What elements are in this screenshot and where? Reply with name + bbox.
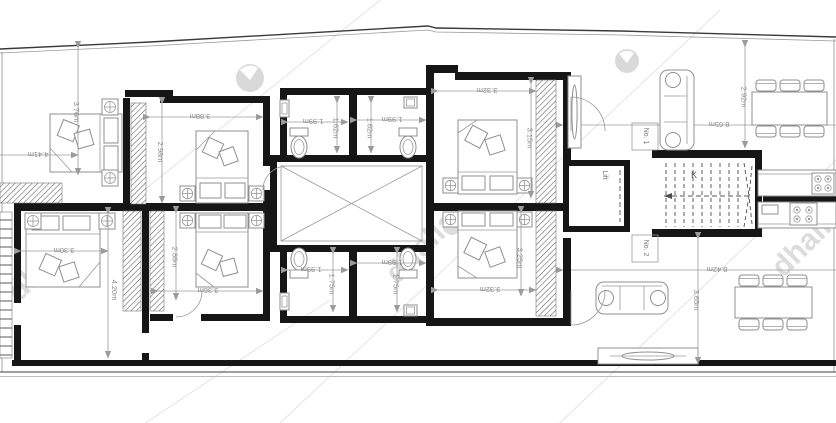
- sofa-icon: [596, 282, 668, 314]
- bedside-vent-icon: [517, 178, 532, 193]
- dim-living2-height: 3.65m: [692, 290, 701, 311]
- wardrobe: [123, 211, 141, 311]
- dim-bedroom3-width: 3.32m: [477, 86, 498, 95]
- lift-label: Lift: [601, 170, 608, 179]
- wardrobe: [536, 211, 556, 316]
- floor-plan-svg: dhalia dhalia dhalia: [0, 0, 836, 423]
- dim-bedroom6-height: 3.25m: [516, 248, 525, 269]
- staircase: K: [664, 163, 752, 227]
- dim-bath4-width: 1.99m: [382, 258, 403, 267]
- ventilation-shaft: [281, 166, 422, 241]
- unit-labels: No. 1 No. 2: [632, 123, 658, 262]
- wardrobe: [0, 183, 62, 203]
- toilet-icon: [290, 128, 308, 158]
- bedside-vent-icon: [180, 186, 195, 201]
- stairs-label: K: [691, 170, 697, 180]
- planter-icon: [598, 348, 698, 364]
- dim-bath2-width: 1.99m: [382, 115, 403, 124]
- dim-bath4-height: 1.75m: [392, 274, 401, 295]
- sink-icon: [280, 100, 289, 117]
- wardrobe: [150, 211, 164, 311]
- dim-bath3-width: 1.99m: [301, 265, 322, 274]
- bedside-vent-icon: [180, 213, 195, 228]
- toilet-icon: [399, 128, 417, 158]
- bed-icon: [196, 213, 248, 287]
- dim-bedroom1-width: 4.41m: [28, 150, 49, 159]
- wardrobe: [536, 80, 556, 203]
- bedside-vent-icon: [25, 213, 41, 229]
- planter-shelf: [0, 212, 12, 358]
- tv-unit-icon: [568, 76, 581, 148]
- dim-living2-width: 8.42m: [707, 265, 728, 274]
- dining-table-icon: [735, 275, 812, 330]
- dim-bath1-height: 1.62m: [332, 118, 341, 139]
- dim-living1-width: 8.65m: [709, 120, 730, 129]
- dim-bedroom4-height: 4.20m: [110, 280, 119, 301]
- bedside-vent-icon: [443, 212, 458, 227]
- bed-icon: [458, 211, 517, 278]
- dim-bedroom2-width: 3.88m: [190, 112, 211, 121]
- dim-bedroom4-width: 3.30m: [54, 246, 75, 255]
- bedside-vent-icon: [249, 186, 264, 201]
- dim-bedroom1-height: 3.76m: [72, 102, 81, 123]
- dim-bedroom5-height: 2.86m: [171, 247, 180, 268]
- floor-plan-canvas: dhalia dhalia dhalia: [0, 0, 836, 423]
- dim-living1-height: 2.92m: [740, 87, 749, 108]
- kitchen-counter-unit1: [758, 170, 836, 196]
- sink-icon: [404, 97, 417, 108]
- bed-icon: [196, 131, 248, 203]
- dim-bedroom5-width: 3.36m: [198, 286, 219, 295]
- bedside-vent-icon: [102, 99, 118, 115]
- unit2-label: No. 2: [642, 240, 649, 257]
- kitchen-counter-unit2: [758, 202, 836, 228]
- bed-icon: [458, 120, 517, 194]
- sink-icon: [280, 293, 289, 310]
- unit1-label: No. 1: [642, 128, 649, 145]
- dim-bedroom2-height: 2.98m: [156, 142, 165, 163]
- lift-shaft: Lift: [601, 170, 620, 222]
- dining-table-icon: [752, 80, 827, 137]
- bedside-vent-icon: [249, 213, 264, 228]
- bedside-vent-icon: [443, 178, 458, 193]
- dim-bedroom6-width: 3.32m: [480, 285, 501, 294]
- dim-bath1-width: 1.99m: [303, 117, 324, 126]
- dim-bath3-height: 1.75m: [328, 274, 337, 295]
- bedside-vent-icon: [517, 212, 532, 227]
- dim-bath2-height: 1.62m: [366, 118, 375, 139]
- bed-icon: [50, 114, 122, 172]
- wardrobe: [131, 103, 146, 204]
- bedside-vent-icon: [102, 170, 118, 186]
- sink-icon: [404, 305, 417, 316]
- bedside-vent-icon: [99, 213, 115, 229]
- dim-bedroom3-height: 3.15m: [526, 128, 535, 149]
- sofa-icon: [660, 70, 694, 150]
